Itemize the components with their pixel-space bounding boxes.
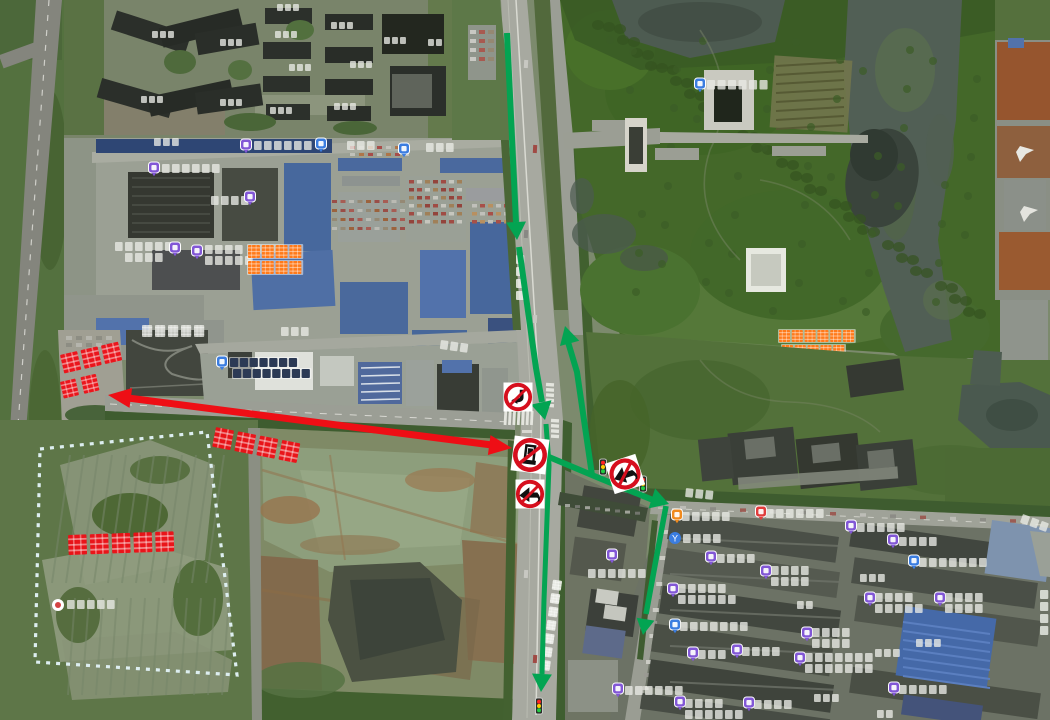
svg-text:Y: Y: [672, 534, 678, 544]
